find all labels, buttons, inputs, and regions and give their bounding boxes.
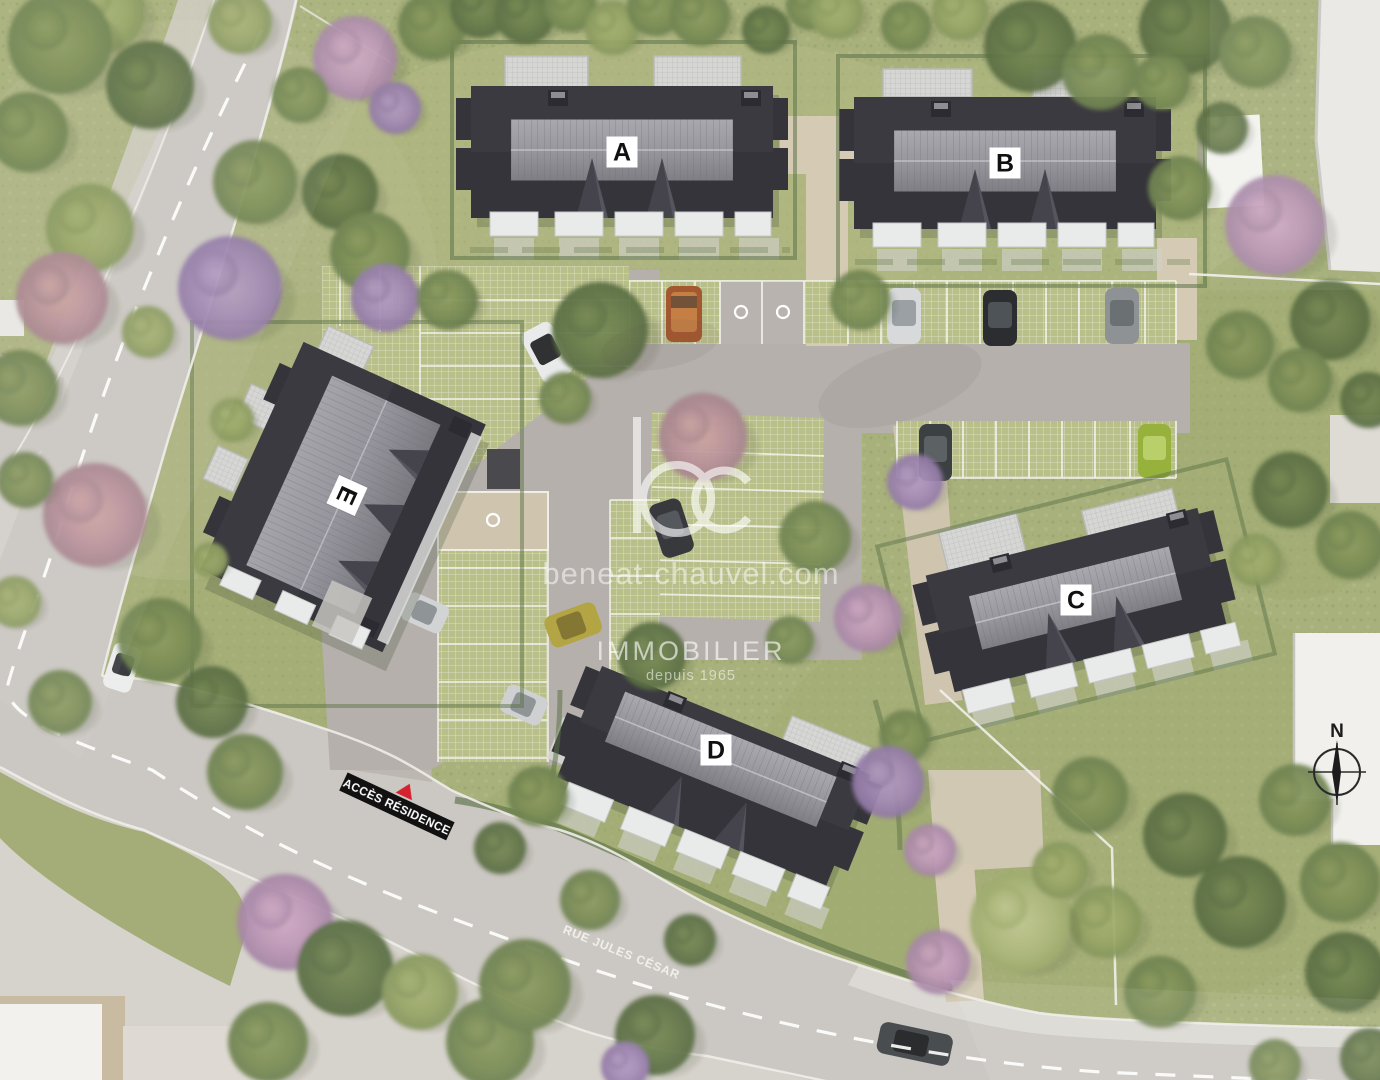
svg-text:B: B [996, 150, 1014, 178]
svg-text:depuis 1965: depuis 1965 [646, 668, 736, 684]
svg-text:N: N [1330, 721, 1344, 742]
svg-text:A: A [613, 139, 631, 167]
svg-text:D: D [707, 737, 725, 765]
svg-text:C: C [1067, 587, 1085, 615]
svg-text:IMMOBILIER: IMMOBILIER [596, 636, 785, 666]
svg-text:beneat-chauvel.com: beneat-chauvel.com [542, 556, 839, 591]
